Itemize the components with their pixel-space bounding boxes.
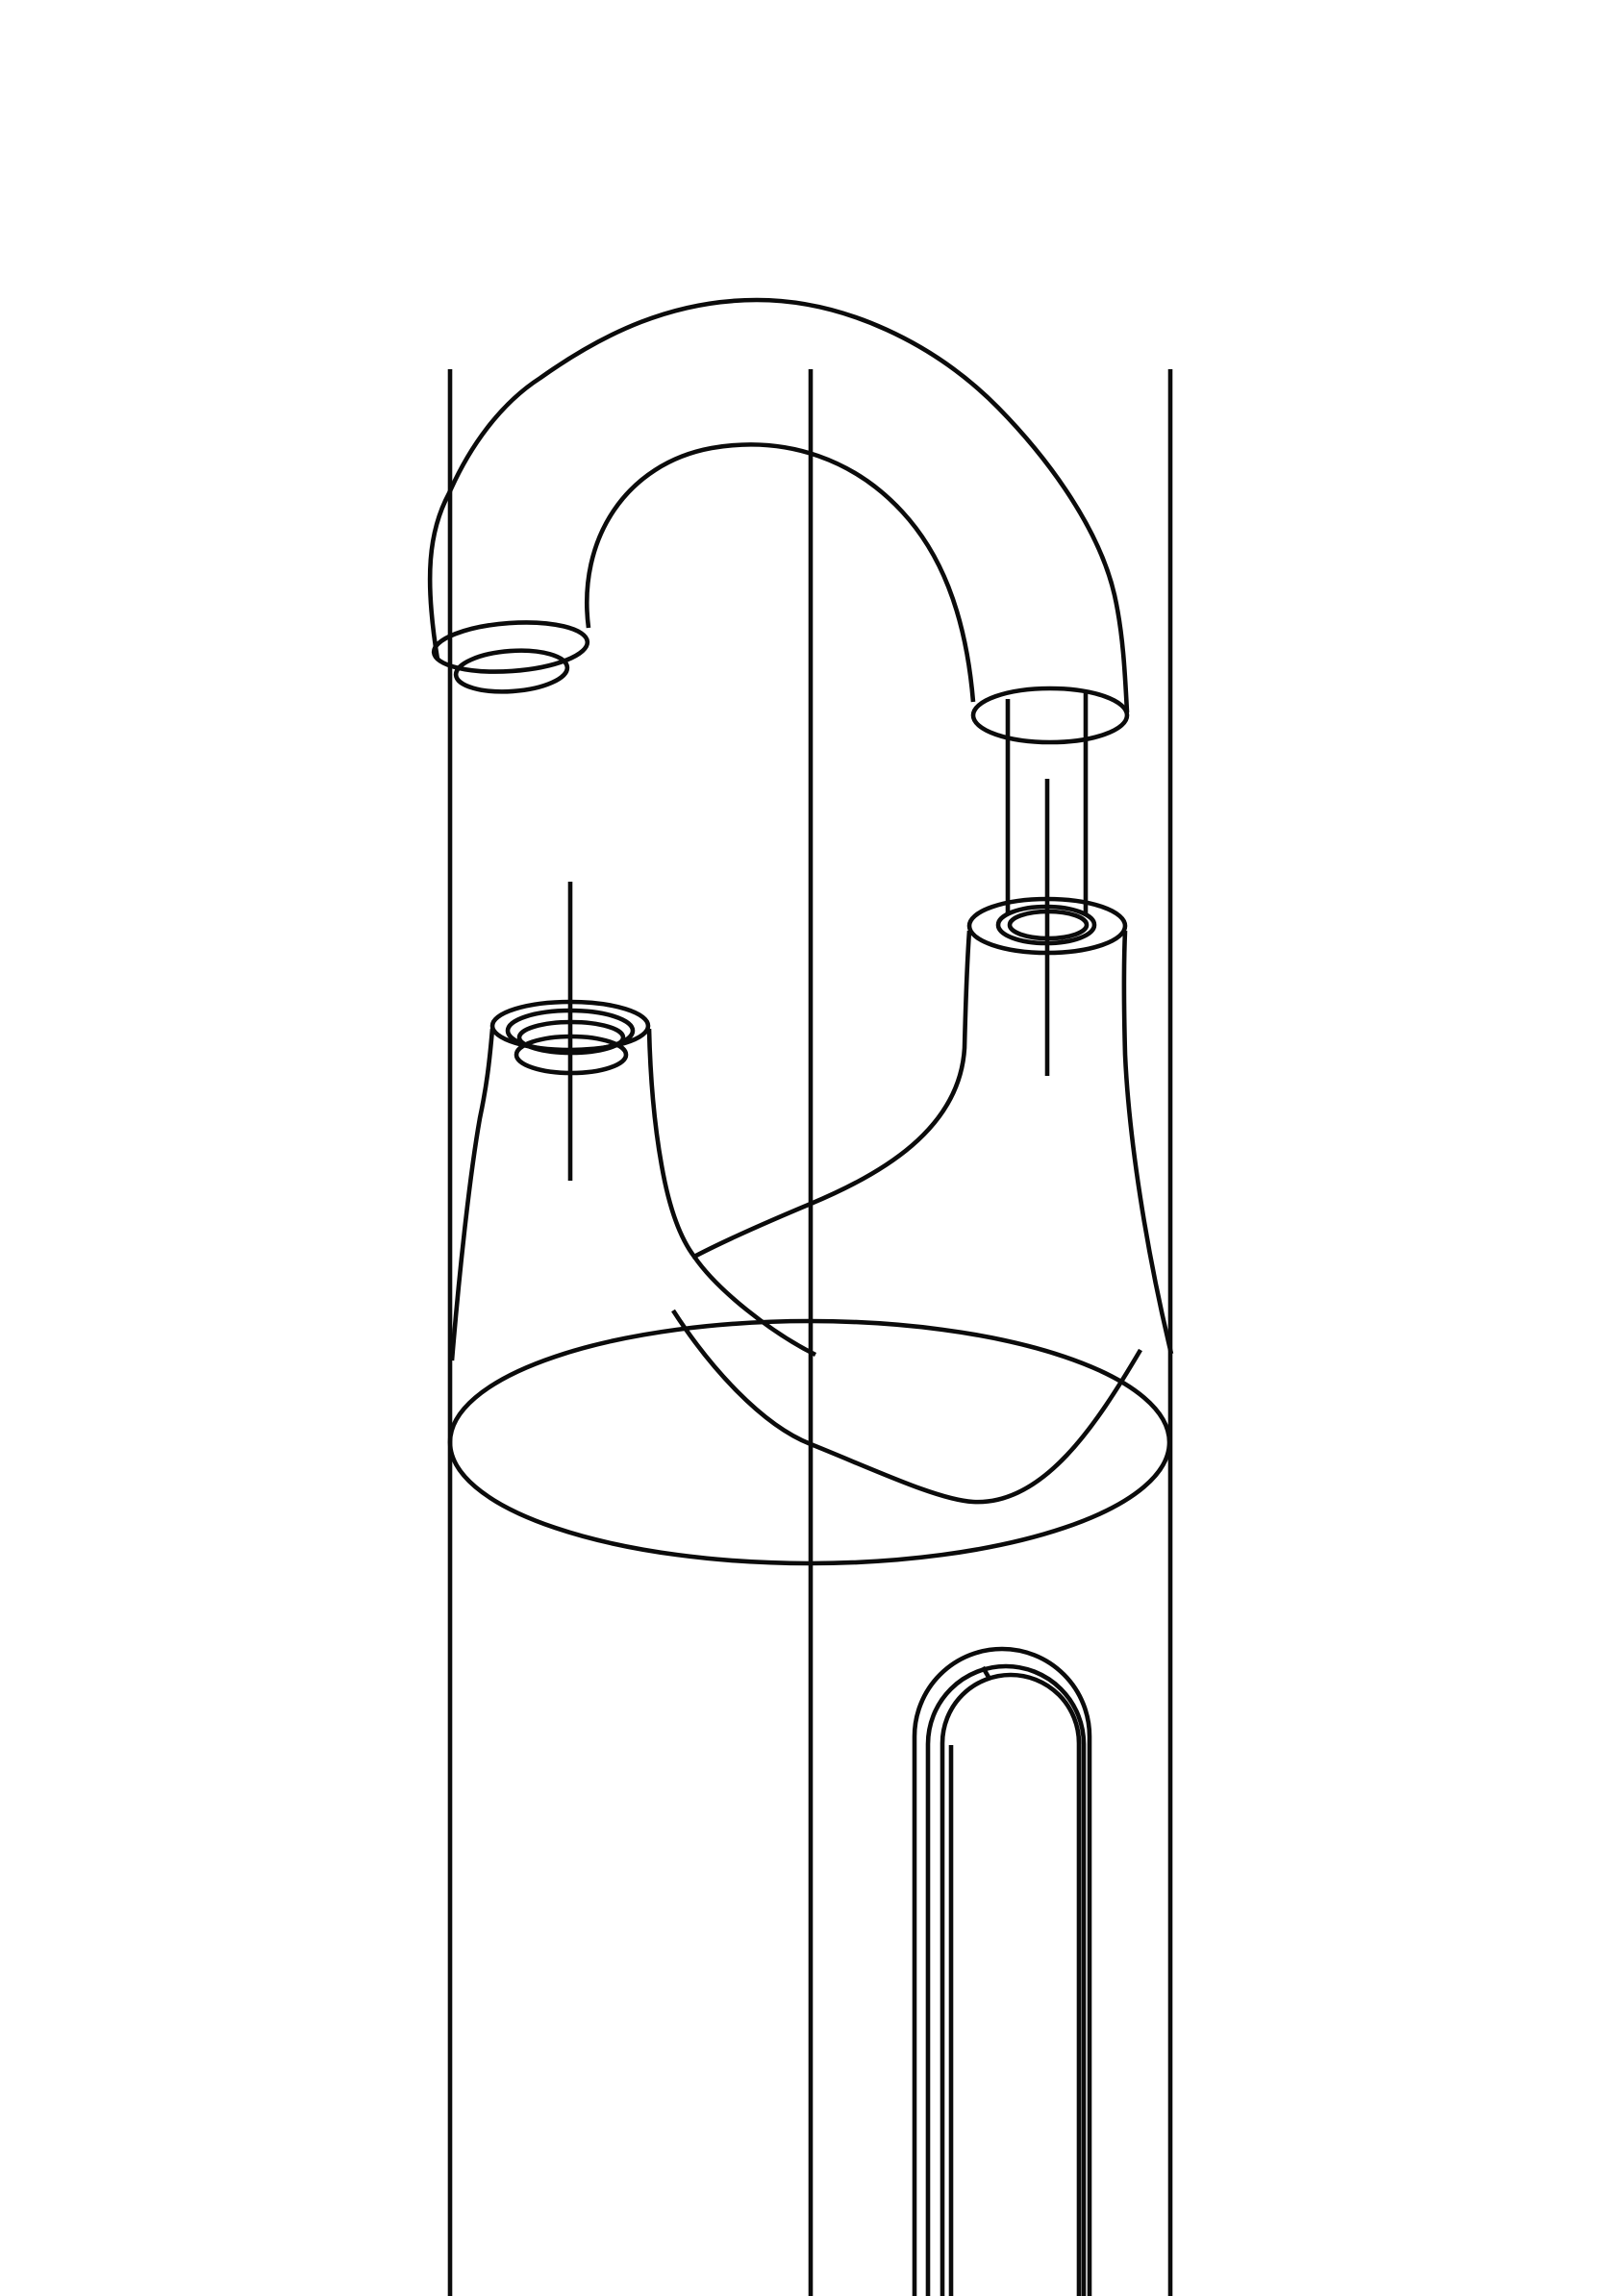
spout-inner-arc — [587, 444, 973, 702]
left-socket-left-profile — [452, 1029, 492, 1360]
body-intersection-sweep-curve — [673, 1310, 1140, 1502]
right-socket-right-profile — [1124, 931, 1171, 1354]
right-socket-left-profile — [692, 931, 969, 1258]
technical-line-drawing — [0, 0, 1604, 2296]
spout-end-ellipse — [973, 688, 1127, 742]
drawing-canvas — [0, 0, 1604, 2296]
slot-inner-outline — [942, 1675, 1079, 2296]
left-socket-right-profile — [649, 1029, 815, 1355]
